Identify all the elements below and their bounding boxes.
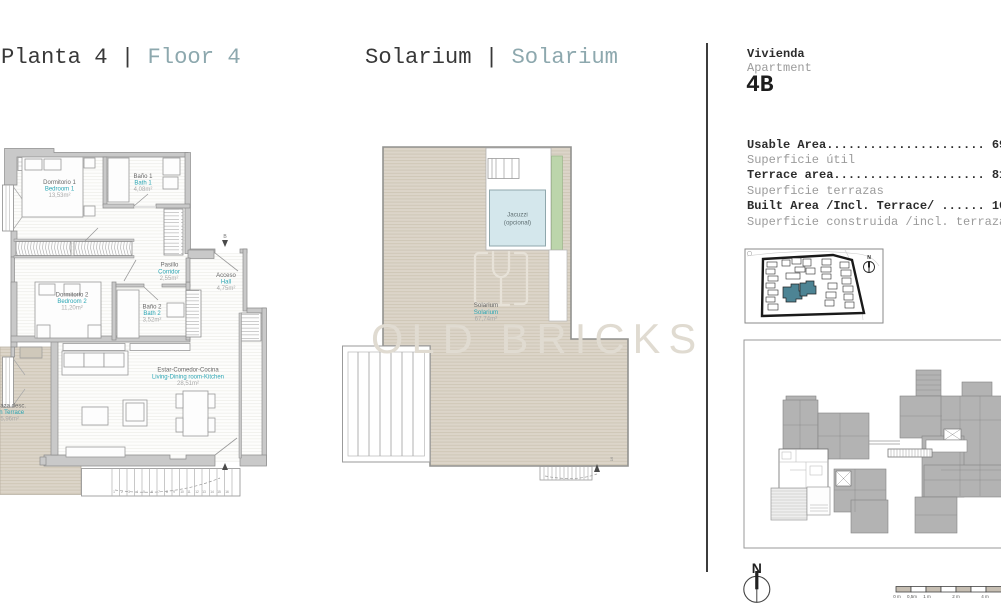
svg-text:13,53m²: 13,53m² <box>48 193 70 199</box>
svg-text:15,96m²: 15,96m² <box>0 417 19 423</box>
svg-text:Sun Terrace: Sun Terrace <box>0 410 25 416</box>
svg-text:Bath 2: Bath 2 <box>143 311 161 317</box>
svg-text:10: 10 <box>180 490 184 494</box>
svg-text:Dormitorio 2: Dormitorio 2 <box>56 293 89 299</box>
svg-text:N: N <box>867 255 871 261</box>
svg-text:14: 14 <box>210 490 214 494</box>
svg-text:Bedroom 2: Bedroom 2 <box>57 299 87 305</box>
svg-text:2,55m²: 2,55m² <box>160 276 179 282</box>
svg-text:Terraza desc.: Terraza desc. <box>0 404 26 410</box>
svg-text:7: 7 <box>158 490 160 494</box>
svg-text:Corridor: Corridor <box>158 269 180 275</box>
svg-text:6: 6 <box>151 490 153 494</box>
svg-text:16: 16 <box>609 456 614 461</box>
svg-text:1 m: 1 m <box>923 594 931 599</box>
svg-text:3: 3 <box>128 490 130 494</box>
svg-text:Pasillo: Pasillo <box>161 263 179 269</box>
svg-text:8: 8 <box>166 490 168 494</box>
svg-text:13: 13 <box>202 490 206 494</box>
svg-text:Baño 1: Baño 1 <box>133 174 153 180</box>
svg-text:N: N <box>752 560 762 576</box>
svg-text:4: 4 <box>136 490 138 494</box>
svg-text:11,20m²: 11,20m² <box>61 306 83 312</box>
svg-text:Acceso: Acceso <box>216 273 236 279</box>
svg-text:2: 2 <box>121 490 123 494</box>
svg-text:Dormitorio 1: Dormitorio 1 <box>43 180 76 186</box>
svg-text:Jacuzzi: Jacuzzi <box>507 212 528 219</box>
svg-text:Baño 2: Baño 2 <box>142 305 162 311</box>
svg-text:15: 15 <box>217 490 221 494</box>
svg-text:3,52m²: 3,52m² <box>143 318 162 324</box>
svg-text:Living-Dining room-Kitchen: Living-Dining room-Kitchen <box>152 374 224 380</box>
svg-text:0 m: 0 m <box>893 594 901 599</box>
svg-text:4,75m²: 4,75m² <box>217 286 236 292</box>
svg-text:28,51m²: 28,51m² <box>177 381 199 387</box>
svg-text:4,08m²: 4,08m² <box>134 187 153 193</box>
svg-text:Hall: Hall <box>221 280 231 286</box>
svg-text:B: B <box>223 234 227 240</box>
svg-text:1: 1 <box>113 490 115 494</box>
svg-text:(opcional): (opcional) <box>504 220 531 227</box>
svg-text:0,5m: 0,5m <box>907 594 917 599</box>
svg-text:2 m: 2 m <box>952 594 960 599</box>
svg-text:4 m: 4 m <box>981 594 989 599</box>
svg-text:Bath 1: Bath 1 <box>134 181 152 187</box>
svg-text:Estar-Comedor-Cocina: Estar-Comedor-Cocina <box>157 368 219 374</box>
svg-text:12: 12 <box>195 490 199 494</box>
svg-text:Bedroom 1: Bedroom 1 <box>45 187 75 193</box>
svg-text:5: 5 <box>143 490 145 494</box>
svg-text:11: 11 <box>187 490 191 494</box>
svg-text:16: 16 <box>225 490 229 494</box>
svg-text:9: 9 <box>173 490 175 494</box>
